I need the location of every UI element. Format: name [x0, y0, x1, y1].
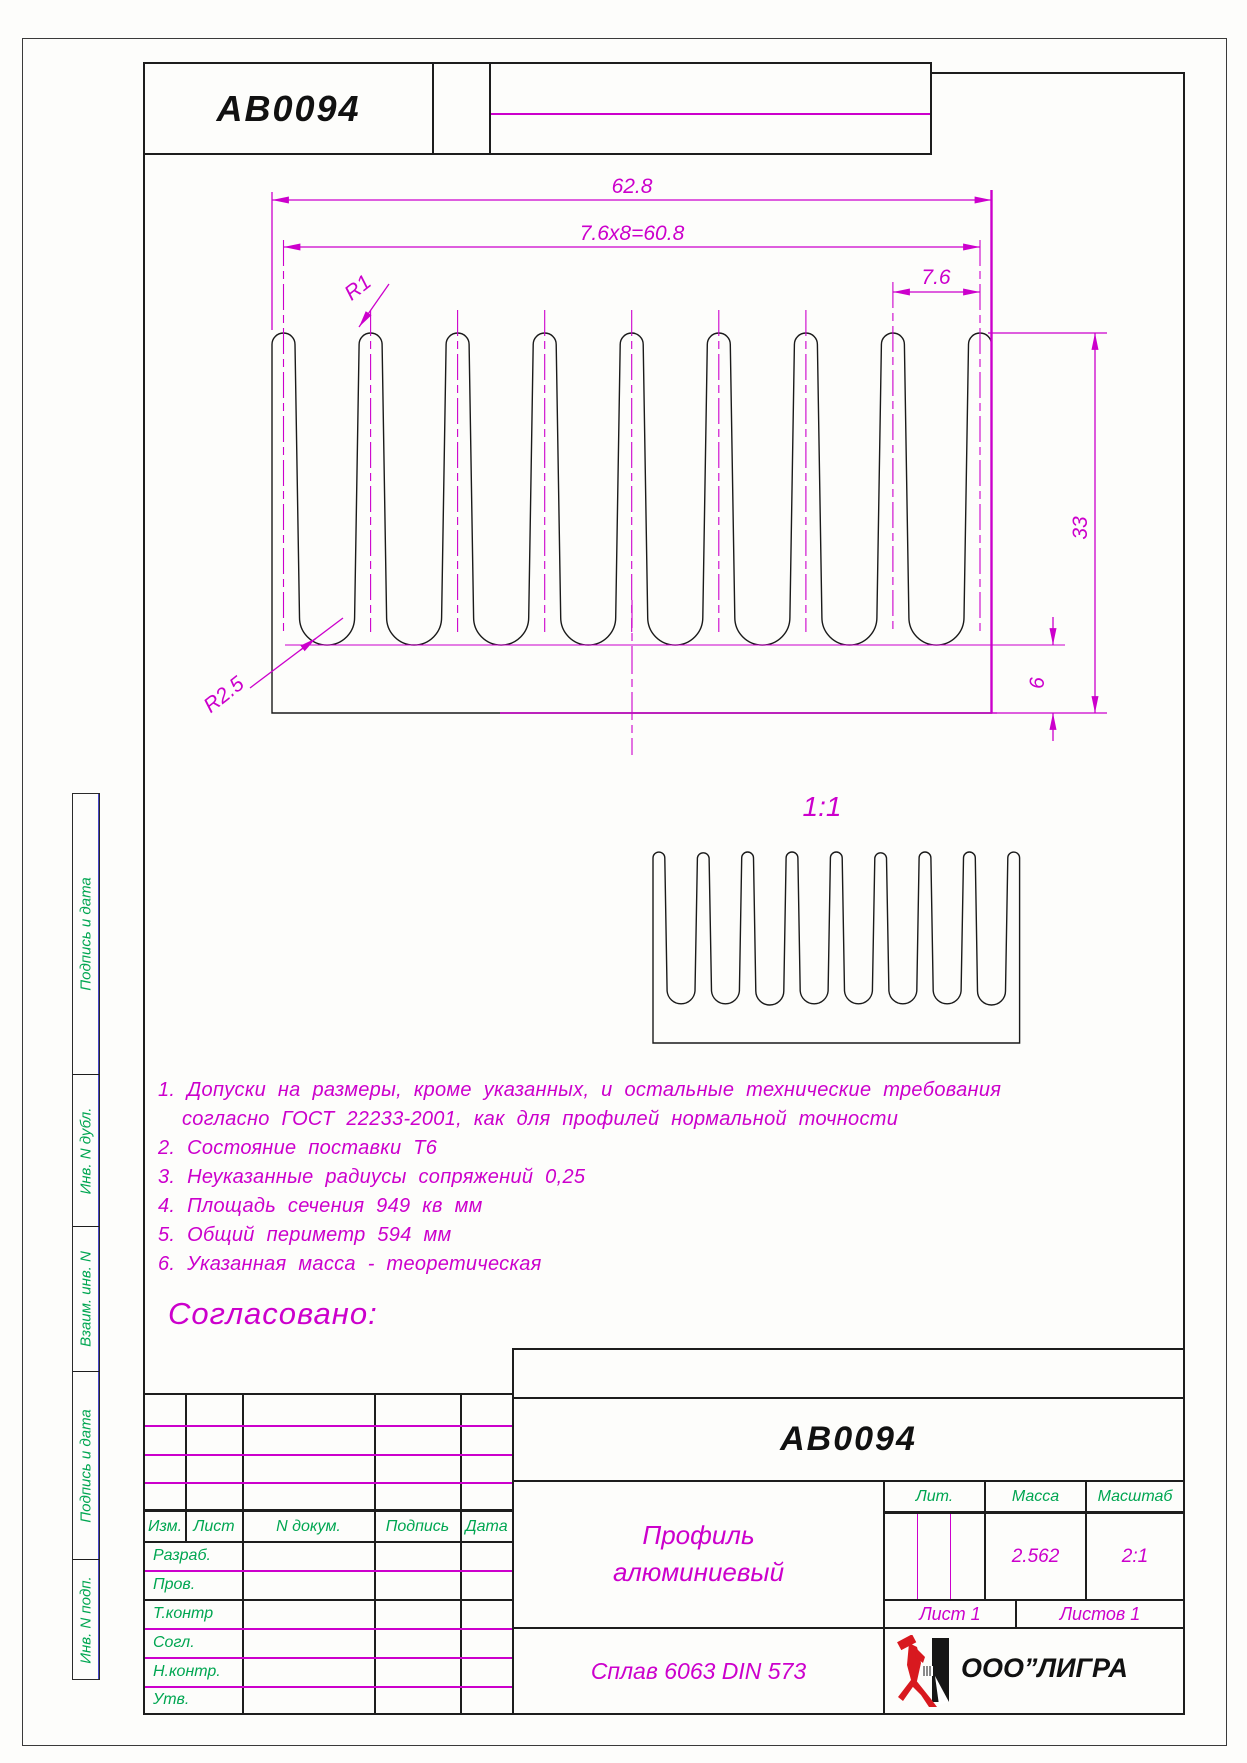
- material: Сплав 6063 DIN 573: [514, 1629, 883, 1713]
- note-line: 6. Указанная масса - теоретическая: [158, 1250, 1001, 1279]
- radius-fin-label: R1: [340, 271, 375, 306]
- part-name: Профиль алюминиевый: [514, 1482, 883, 1625]
- scale-view-label: 1:1: [803, 791, 842, 822]
- dim-pitch: 7.6: [921, 266, 951, 289]
- note-line: согласно ГОСТ 22233-2001, как для профил…: [158, 1105, 1001, 1134]
- sheets-info: Листов 1: [1017, 1601, 1183, 1627]
- note-line: 4. Площадь сечения 949 кв мм: [158, 1192, 1001, 1221]
- sign-row-label: Утв.: [153, 1691, 189, 1709]
- line: [242, 1395, 244, 1713]
- drawing-sheet: AB0094: [0, 0, 1247, 1763]
- col-lit: Лит.: [885, 1482, 984, 1511]
- revision-table: Изм. Лист N докум. Подпись Дата Разраб. …: [143, 1393, 514, 1715]
- title-block: AB0094 Профиль алюминиевый Сплав 6063 DI…: [512, 1348, 1185, 1715]
- line: [145, 1657, 512, 1659]
- margin-cell: Инв. N дубл.: [73, 1075, 98, 1226]
- part-name-line1: Профиль: [613, 1517, 784, 1554]
- col-date: Дата: [461, 1512, 512, 1541]
- company-cell: ООО”ЛИГРА: [885, 1629, 1183, 1713]
- line: [145, 1482, 512, 1484]
- line: [460, 1395, 462, 1713]
- line: [374, 1395, 376, 1713]
- approved-label: Согласовано:: [168, 1296, 378, 1332]
- radius-gap-label: R2.5: [199, 672, 248, 718]
- technical-notes: 1. Допуски на размеры, кроме указанных, …: [158, 1076, 1001, 1279]
- col-scale: Масштаб: [1087, 1482, 1183, 1511]
- col-izm: Изм.: [145, 1512, 185, 1541]
- sign-row-label: Согл.: [153, 1634, 195, 1652]
- margin-label: Подпись и дата: [77, 1409, 94, 1522]
- margin-label: Взаим. инв. N: [77, 1251, 94, 1347]
- note-line: 3. Неуказанные радиусы сопряжений 0,25: [158, 1163, 1001, 1192]
- margin-cell: Инв. N подп.: [73, 1560, 98, 1679]
- col-doc: N докум.: [243, 1512, 374, 1541]
- col-mass: Масса: [986, 1482, 1085, 1511]
- note-line: 2. Состояние поставки Т6: [158, 1134, 1001, 1163]
- line: [145, 1599, 512, 1601]
- line: [145, 1425, 512, 1427]
- margin-blue-line: [98, 794, 99, 1679]
- sign-row-label: Т.контр: [153, 1605, 213, 1623]
- part-name-line2: алюминиевый: [613, 1554, 784, 1591]
- margin-cell: Подпись и дата: [73, 1372, 98, 1559]
- mass-value: 2.562: [986, 1514, 1085, 1599]
- title-doc-number: AB0094: [514, 1399, 1183, 1480]
- dim-height-total: 33: [1069, 516, 1092, 540]
- col-sign: Подпись: [375, 1512, 460, 1541]
- dim-width-total: 62.8: [612, 175, 653, 198]
- line: [145, 1541, 512, 1543]
- margin-label: Инв. N подп.: [77, 1576, 94, 1663]
- line: [145, 1686, 512, 1688]
- line: [145, 1570, 512, 1572]
- company-logo-icon: [895, 1635, 955, 1709]
- margin-label: Инв. N дубл.: [77, 1107, 94, 1194]
- sign-row-label: Н.контр.: [153, 1663, 221, 1681]
- profile-outlines: [272, 240, 1020, 1043]
- margin-label-column: Подпись и дата Инв. N дубл. Взаим. инв. …: [72, 793, 100, 1680]
- dimension-lines: [250, 190, 1107, 755]
- note-line: 1. Допуски на размеры, кроме указанных, …: [158, 1076, 1001, 1105]
- note-line: 5. Общий периметр 594 мм: [158, 1221, 1001, 1250]
- line: [950, 1514, 951, 1599]
- company-name: ООО”ЛИГРА: [961, 1653, 1128, 1684]
- line: [917, 1514, 918, 1599]
- margin-label: Подпись и дата: [77, 877, 94, 990]
- col-list: Лист: [186, 1512, 242, 1541]
- line: [145, 1628, 512, 1630]
- dim-base: 6: [1026, 677, 1049, 689]
- scale-value: 2:1: [1087, 1514, 1183, 1599]
- line: [145, 1454, 512, 1456]
- sign-row-label: Пров.: [153, 1576, 195, 1594]
- sign-row-label: Разраб.: [153, 1547, 211, 1565]
- sheet-info: Лист 1: [885, 1601, 1015, 1627]
- dim-pitch-total: 7.6x8=60.8: [580, 222, 685, 245]
- margin-cell: Подпись и дата: [73, 794, 98, 1074]
- margin-cell: Взаим. инв. N: [73, 1227, 98, 1371]
